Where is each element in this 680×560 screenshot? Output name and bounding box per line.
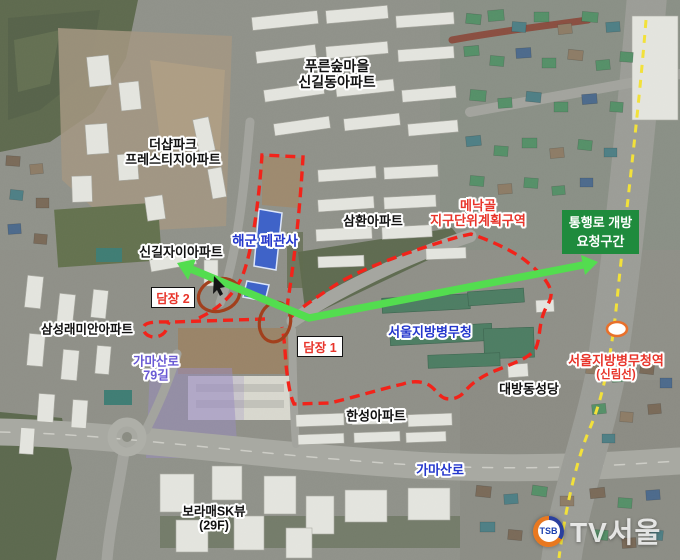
label-singil-xi-apt: 신길자이아파트 bbox=[139, 245, 223, 260]
aerial-map: 푸른숲마을신길동아파트 더샵파크프레스티지아파트 메낙골지구단위계획구역 통행로… bbox=[0, 0, 680, 560]
wall-2-tag: 담장 2 bbox=[151, 287, 195, 308]
tsb-logo-icon: TSB bbox=[533, 516, 564, 547]
label-military-manpower-office: 서울지방병무청 bbox=[388, 325, 472, 340]
open-request-box: 통행로 개방요청구간 bbox=[562, 210, 639, 254]
label-hanseong-apt: 한성아파트 bbox=[346, 409, 406, 424]
label-thesharp-prestige-apt: 더샵파크프레스티지아파트 bbox=[125, 137, 221, 167]
label-daebang-cathedral: 대방동성당 bbox=[499, 382, 559, 397]
label-station-sillim: 서울지방병무청역 (신림선) bbox=[568, 353, 664, 383]
label-gamasanro-79gil: 가마산로79길 bbox=[133, 356, 179, 383]
label-gamasanro: 가마산로 bbox=[416, 463, 464, 478]
watermark-tvseoul: TSB TV서울 bbox=[533, 511, 661, 551]
station-marker-icon bbox=[607, 322, 627, 336]
label-samsung-raemian-apt: 삼성래미안아파트 bbox=[41, 323, 133, 337]
label-samhwan-apt: 삼환아파트 bbox=[343, 214, 403, 229]
label-menakgol-district: 메낙골지구단위계획구역 bbox=[430, 198, 526, 228]
label-boramae-skview: 보라매SK뷰(29F) bbox=[182, 506, 245, 533]
wall-1-tag: 담장 1 bbox=[297, 336, 343, 357]
label-navy-closed-quarters: 해군 폐관사 bbox=[232, 234, 298, 249]
label-pureun-forest-apt: 푸른숲마을신길동아파트 bbox=[298, 58, 375, 90]
watermark-text: TV서울 bbox=[570, 511, 661, 551]
